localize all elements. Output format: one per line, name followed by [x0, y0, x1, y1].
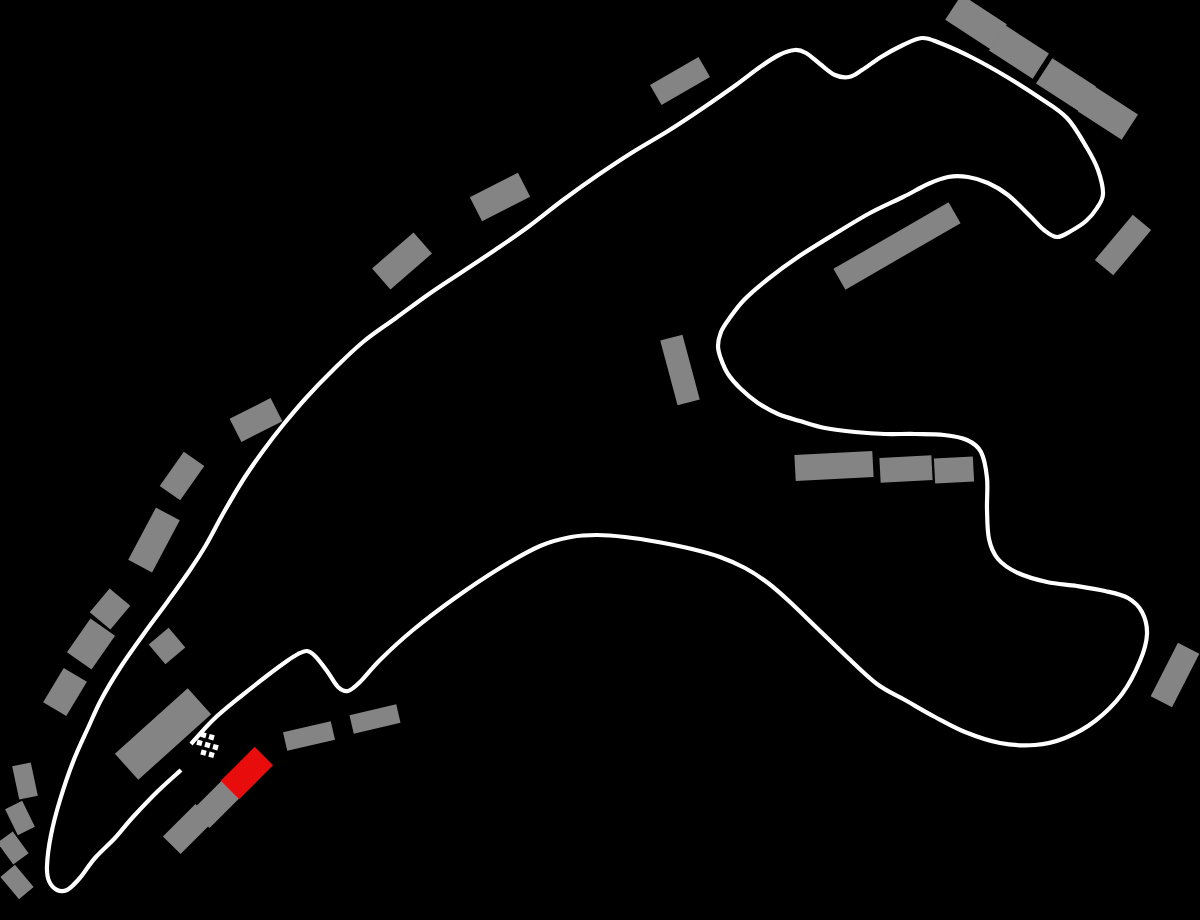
grandstand	[794, 451, 873, 481]
grandstand	[0, 865, 33, 899]
grandstand	[470, 173, 530, 222]
grandstand	[660, 335, 700, 406]
grandstands-group	[0, 0, 1199, 899]
grandstand	[1151, 643, 1200, 707]
grandstand	[115, 688, 211, 780]
grandstand	[0, 831, 29, 864]
grandstand	[372, 232, 432, 289]
flag-square	[212, 744, 218, 750]
circuit-map-canvas	[0, 0, 1200, 920]
flag-square	[208, 752, 214, 758]
flag-square	[196, 740, 202, 746]
flag-square	[208, 734, 214, 740]
grandstand	[1095, 215, 1151, 276]
grandstand	[283, 721, 335, 751]
grandstand	[879, 455, 932, 483]
grandstand	[160, 452, 205, 501]
grandstand	[349, 704, 400, 733]
grandstand	[128, 508, 180, 573]
grandstand	[12, 762, 38, 799]
grandstand	[650, 57, 710, 105]
flag-square	[200, 749, 206, 755]
grandstand	[934, 456, 974, 483]
grandstand	[833, 202, 960, 289]
track-outline	[47, 38, 1147, 891]
grandstand	[43, 668, 87, 716]
flag-square	[204, 742, 210, 748]
circuit-map	[0, 0, 1200, 920]
grandstand	[5, 801, 35, 835]
grandstand	[149, 628, 186, 665]
